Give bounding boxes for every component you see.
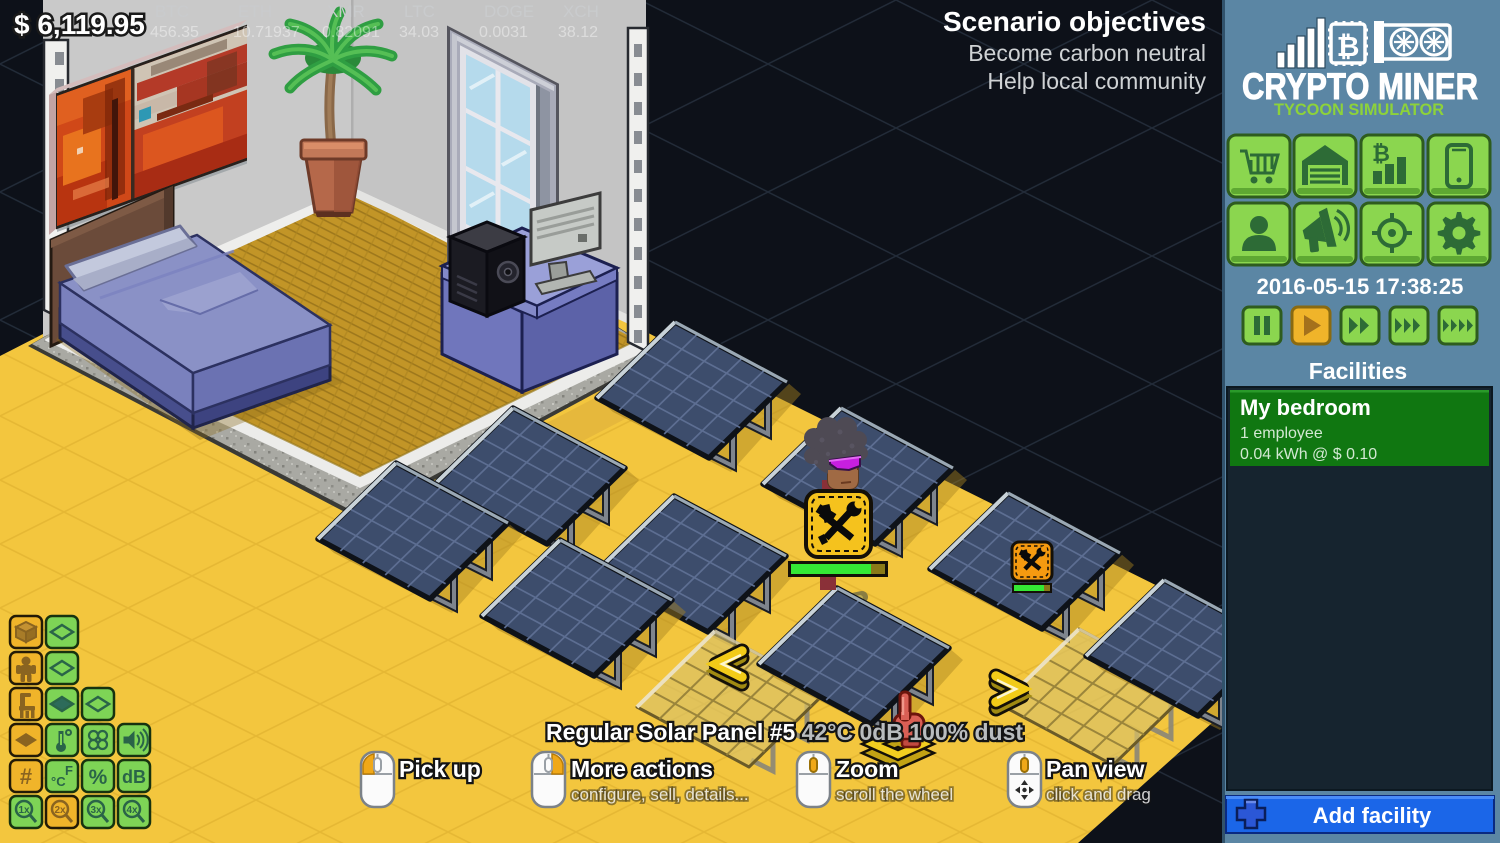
svg-text:38.12: 38.12	[558, 24, 598, 41]
svg-text:3x: 3x	[90, 805, 102, 816]
svg-text:Become carbon neutral: Become carbon neutral	[968, 40, 1206, 66]
svg-text:More actions: More actions	[571, 756, 713, 782]
svg-text:10.71937: 10.71937	[233, 24, 300, 41]
svg-text:My bedroom: My bedroom	[1240, 395, 1371, 420]
svg-text:XCH: XCH	[563, 2, 599, 21]
svg-text:₿: ₿	[1372, 141, 1390, 166]
svg-text:Facilities: Facilities	[1309, 358, 1407, 384]
svg-text:scroll the wheel: scroll the wheel	[836, 785, 953, 804]
svg-text:DOGE: DOGE	[484, 2, 534, 21]
svg-text:Pan view: Pan view	[1046, 756, 1145, 782]
svg-text:XMR: XMR	[327, 2, 365, 21]
svg-text:$ 6,119.95: $ 6,119.95	[14, 9, 145, 40]
svg-text:0.82091: 0.82091	[322, 24, 380, 41]
svg-text:₿: ₿	[1337, 31, 1360, 62]
svg-text:BTC: BTC	[155, 2, 189, 21]
svg-text:configure, sell, details...: configure, sell, details...	[571, 785, 749, 804]
svg-text:%: %	[89, 766, 108, 789]
svg-text:2016-05-15 17:38:25: 2016-05-15 17:38:25	[1257, 274, 1464, 299]
svg-text:°C: °C	[51, 774, 66, 789]
svg-text:0.04 kWh @ $ 0.10: 0.04 kWh @ $ 0.10	[1240, 446, 1377, 463]
svg-text:Pick up: Pick up	[399, 756, 481, 782]
svg-text:1x: 1x	[18, 805, 30, 816]
svg-text:34.03: 34.03	[399, 24, 439, 41]
svg-text:#: #	[20, 764, 32, 789]
svg-text:dB: dB	[122, 767, 146, 787]
svg-text:ETH: ETH	[238, 2, 272, 21]
svg-text:Scenario objectives: Scenario objectives	[943, 6, 1206, 37]
svg-text:Help local community: Help local community	[987, 68, 1206, 94]
svg-text:456.35: 456.35	[150, 24, 199, 41]
svg-text:0.0031: 0.0031	[479, 24, 528, 41]
svg-text:2x: 2x	[54, 805, 66, 816]
svg-text:1 employee: 1 employee	[1240, 425, 1323, 442]
svg-text:Regular Solar Panel #5 42°C 0d: Regular Solar Panel #5 42°C 0dB 100% dus…	[546, 719, 1023, 745]
svg-text:click and drag: click and drag	[1046, 785, 1151, 804]
svg-text:LTC: LTC	[404, 2, 435, 21]
svg-text:TYCOON SIMULATOR: TYCOON SIMULATOR	[1274, 100, 1444, 119]
svg-text:4x: 4x	[126, 805, 138, 816]
svg-text:Zoom: Zoom	[836, 756, 899, 782]
svg-text:F: F	[65, 763, 73, 778]
svg-text:Add facility: Add facility	[1313, 803, 1432, 828]
